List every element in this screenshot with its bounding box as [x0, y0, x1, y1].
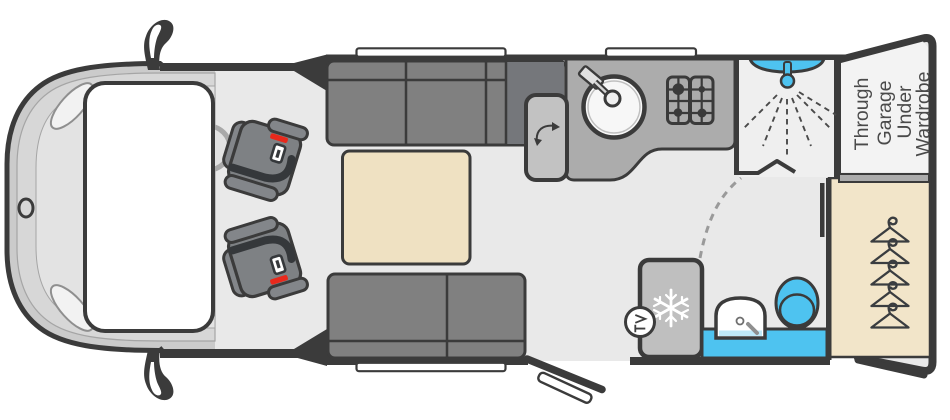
svg-text:Through: Through: [851, 78, 873, 151]
svg-text:Garage: Garage: [874, 80, 896, 145]
svg-text:Wardrobe: Wardrobe: [913, 72, 935, 157]
